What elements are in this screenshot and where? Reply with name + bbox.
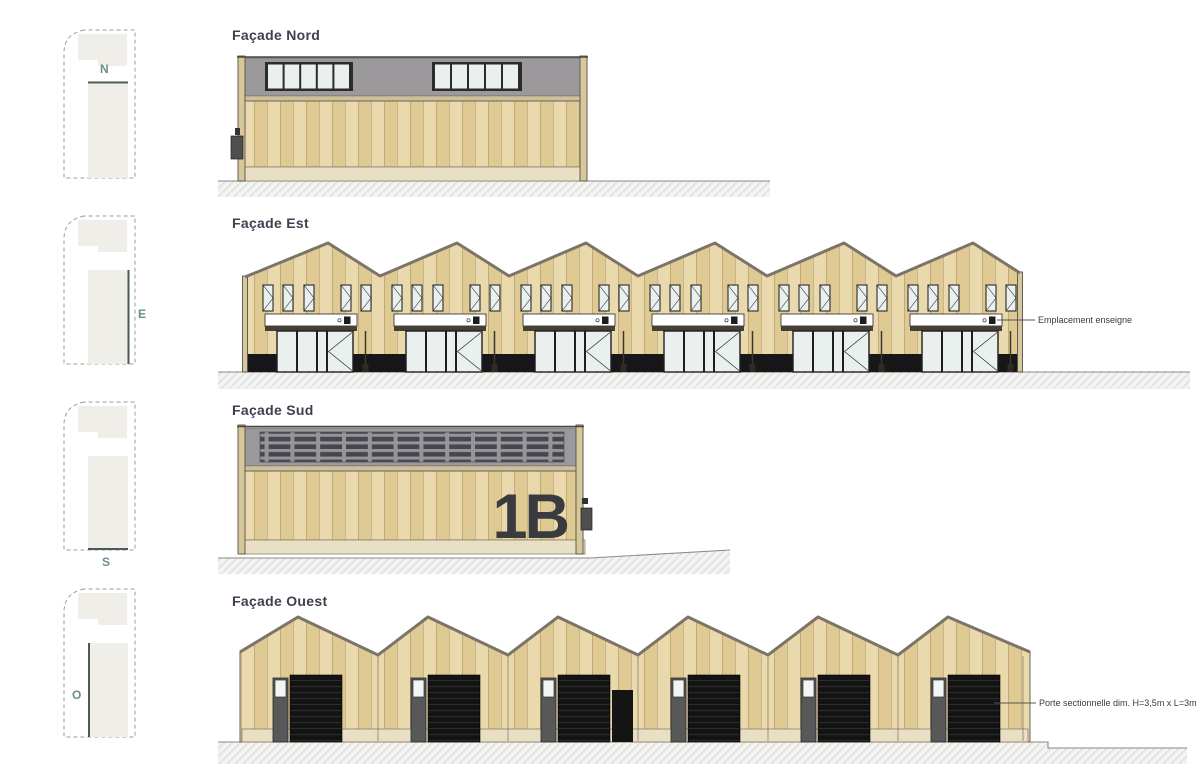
facade-est-title: Façade Est bbox=[232, 215, 309, 231]
corner-post-right bbox=[580, 56, 587, 181]
keyplan-nord: N bbox=[56, 26, 160, 196]
edge-post-right bbox=[1018, 272, 1023, 372]
corner-post-left bbox=[238, 56, 245, 181]
facade-nord-drawing bbox=[215, 48, 775, 198]
facade-ouest-title: Façade Ouest bbox=[232, 593, 327, 609]
facade-sud-drawing: 1B bbox=[215, 420, 735, 578]
wood-cladding bbox=[242, 101, 583, 167]
fascia bbox=[242, 466, 583, 471]
compass-letter-s: S bbox=[102, 555, 110, 569]
compass-letter-o: O bbox=[72, 688, 81, 702]
keyplan-ouest: O bbox=[56, 585, 160, 755]
ground bbox=[218, 372, 1190, 389]
louver-panel bbox=[260, 432, 564, 462]
elevation-sheet: N E S O Façade Nord Façade Est Façade Su… bbox=[0, 0, 1200, 774]
keyplan-sud: S bbox=[56, 398, 160, 574]
svg-text:Emplacement enseigne: Emplacement enseigne bbox=[1038, 315, 1132, 325]
compass-letter-n: N bbox=[100, 62, 109, 76]
plinth-base bbox=[242, 729, 1028, 742]
facade-ouest-drawing: Porte sectionnelle dim. H=3,5m x L=3m bbox=[215, 608, 1200, 766]
recessed-door bbox=[612, 690, 633, 742]
compass-letter-e: E bbox=[138, 307, 146, 321]
sawtooth-wall bbox=[240, 617, 1030, 742]
corner-post-left bbox=[238, 425, 245, 554]
fascia bbox=[242, 96, 583, 101]
facade-est-drawing: Emplacement enseigne bbox=[215, 235, 1200, 390]
utility-box bbox=[581, 498, 592, 530]
corner-post-right bbox=[576, 425, 583, 554]
keyplan-est: E bbox=[56, 212, 160, 382]
edge-post-left bbox=[243, 276, 248, 372]
ground bbox=[218, 742, 1187, 764]
plinth-base bbox=[240, 167, 585, 181]
svg-text:Porte sectionnelle dim. H=3,5m: Porte sectionnelle dim. H=3,5m x L=3m bbox=[1039, 698, 1197, 708]
plinth-base bbox=[240, 540, 585, 554]
facade-nord-title: Façade Nord bbox=[232, 27, 320, 43]
facade-sud-title: Façade Sud bbox=[232, 402, 314, 418]
ground bbox=[218, 181, 770, 197]
